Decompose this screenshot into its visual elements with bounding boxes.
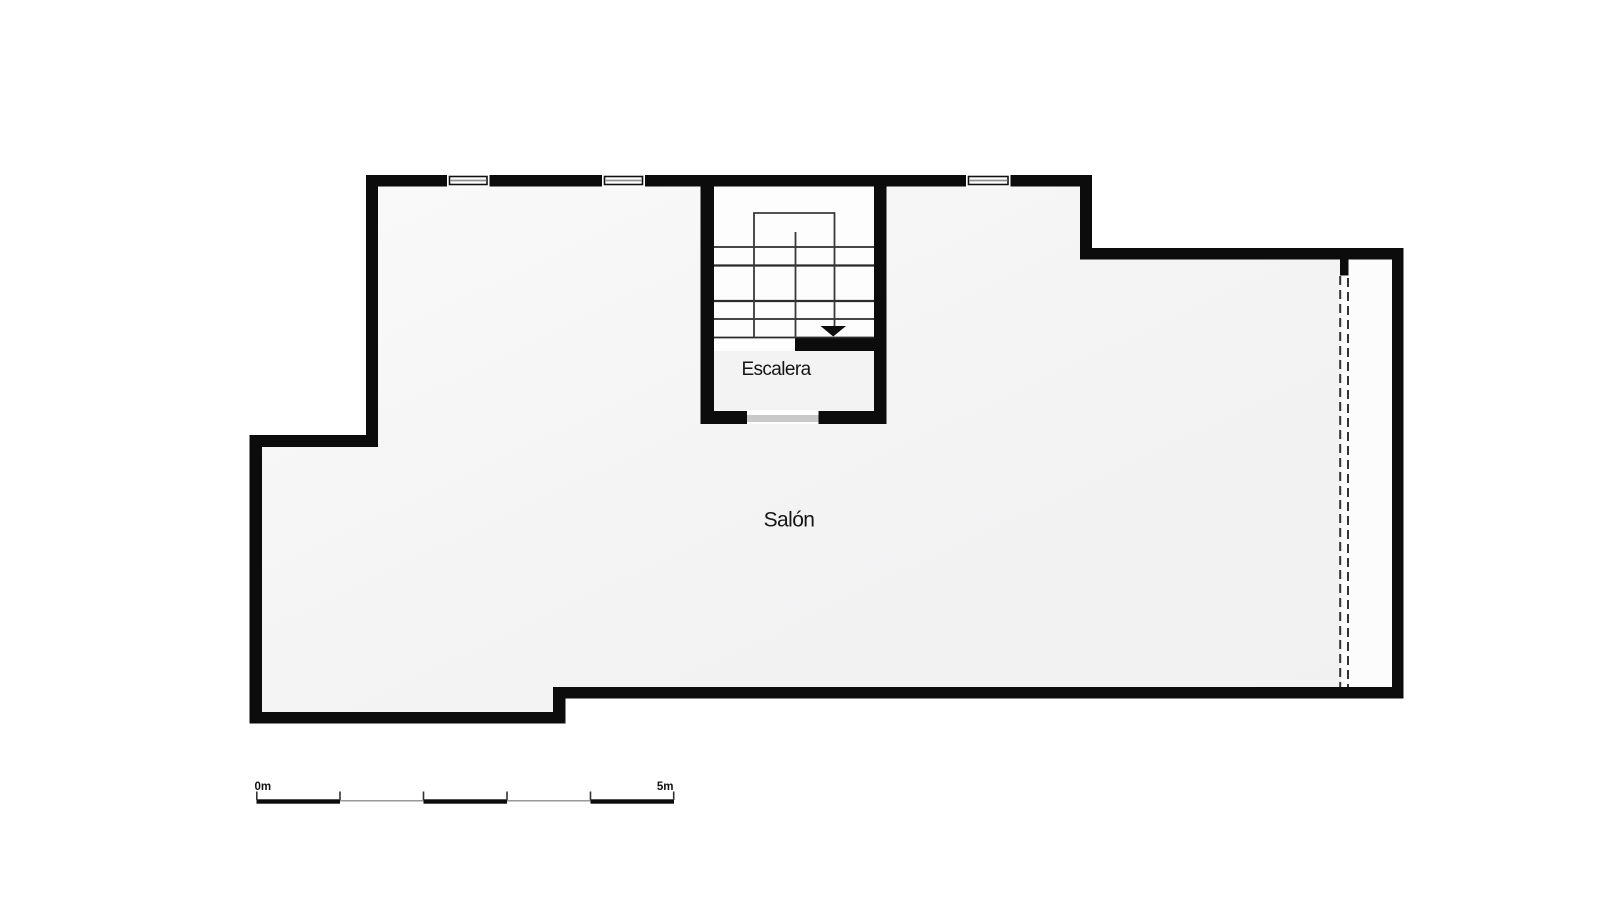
svg-text:Escalera: Escalera	[741, 359, 811, 380]
svg-text:5m: 5m	[657, 781, 674, 793]
svg-text:Salón: Salón	[764, 509, 815, 532]
svg-text:0m: 0m	[255, 781, 272, 793]
